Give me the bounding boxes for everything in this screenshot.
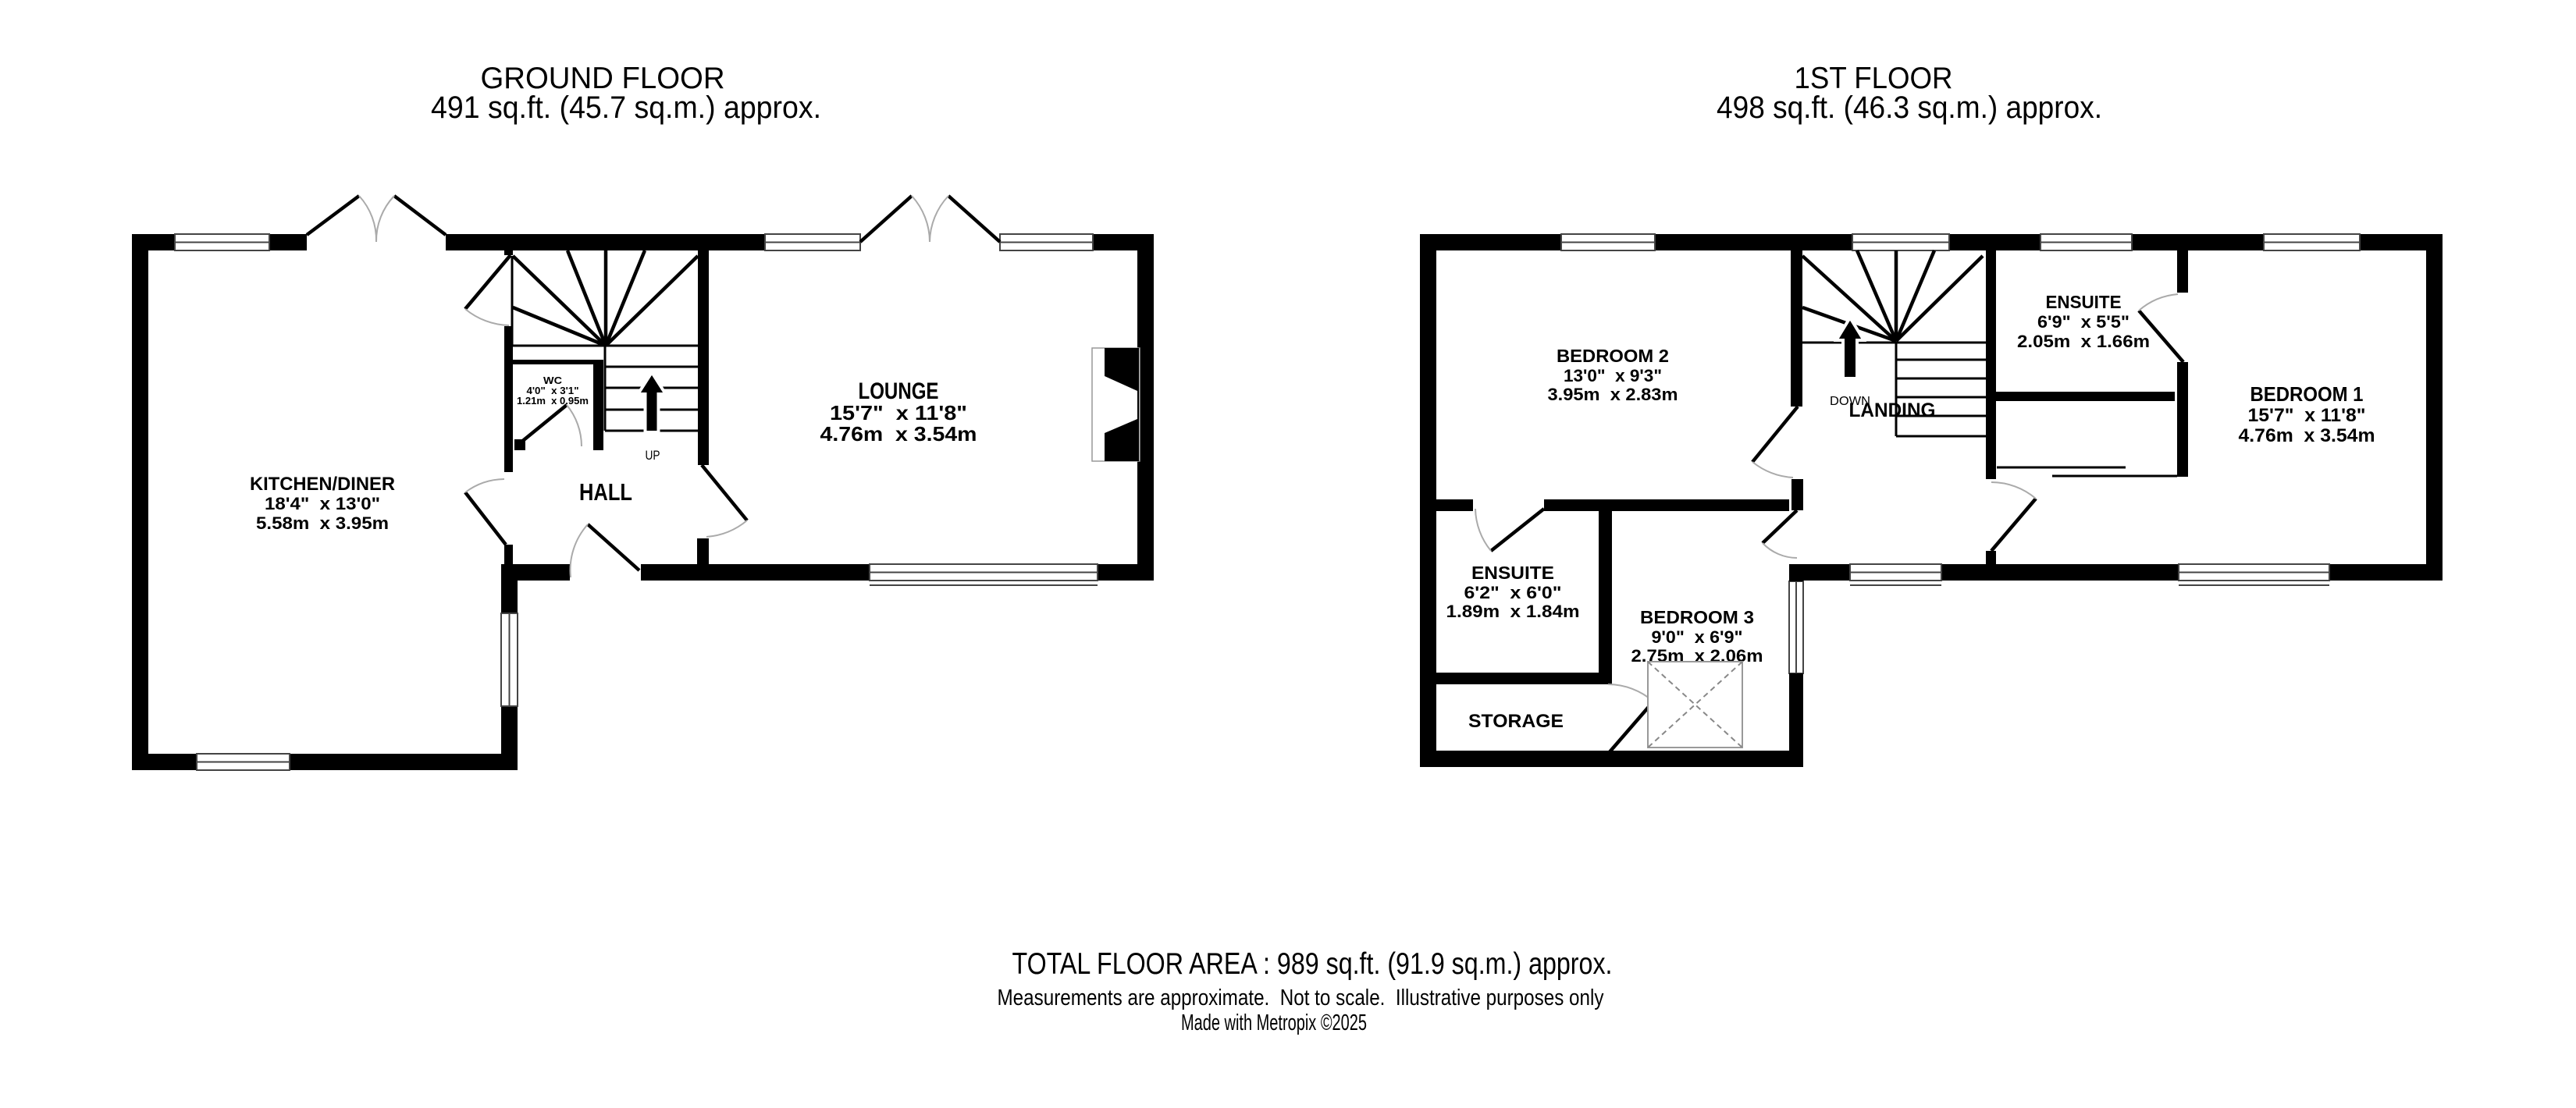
- svg-text:ENSUITE: ENSUITE: [1471, 563, 1554, 583]
- svg-text:498 sq.ft. (46.3 sq.m.) approx: 498 sq.ft. (46.3 sq.m.) approx.: [1717, 91, 2102, 125]
- svg-text:15'7" x 11'8": 15'7" x 11'8": [2248, 405, 2366, 426]
- svg-text:6'2" x 6'0": 6'2" x 6'0": [1464, 583, 1562, 602]
- svg-text:1.21m x 0.95m: 1.21m x 0.95m: [517, 395, 589, 407]
- svg-text:STORAGE: STORAGE: [1468, 711, 1564, 732]
- svg-text:3.95m x 2.83m: 3.95m x 2.83m: [1548, 385, 1678, 404]
- svg-text:6'9" x 5'5": 6'9" x 5'5": [2037, 312, 2129, 332]
- svg-text:TOTAL FLOOR AREA : 989 sq.ft.: TOTAL FLOOR AREA : 989 sq.ft. (91.9 sq.m…: [1012, 947, 1613, 981]
- svg-text:ENSUITE: ENSUITE: [2046, 292, 2122, 312]
- svg-text:UP: UP: [646, 448, 660, 463]
- svg-text:BEDROOM 3: BEDROOM 3: [1640, 607, 1754, 627]
- svg-text:HALL: HALL: [579, 478, 632, 506]
- svg-text:13'0" x 9'3": 13'0" x 9'3": [1564, 366, 1662, 385]
- svg-text:Made with Metropix ©2025: Made with Metropix ©2025: [1181, 1010, 1367, 1035]
- svg-text:15'7" x 11'8": 15'7" x 11'8": [830, 401, 967, 424]
- svg-text:491 sq.ft. (45.7 sq.m.) approx: 491 sq.ft. (45.7 sq.m.) approx.: [431, 91, 821, 125]
- svg-text:4.76m x 3.54m: 4.76m x 3.54m: [820, 422, 977, 446]
- svg-text:5.58m x 3.95m: 5.58m x 3.95m: [256, 513, 389, 533]
- svg-text:2.05m x 1.66m: 2.05m x 1.66m: [2017, 332, 2150, 351]
- svg-text:KITCHEN/DINER: KITCHEN/DINER: [250, 474, 395, 495]
- svg-text:Measurements are approximate.: Measurements are approximate. Not to sca…: [998, 985, 1604, 1010]
- svg-text:18'4" x 13'0": 18'4" x 13'0": [265, 494, 380, 513]
- svg-text:BEDROOM 1: BEDROOM 1: [2250, 382, 2364, 406]
- svg-text:4.76m x 3.54m: 4.76m x 3.54m: [2239, 425, 2375, 446]
- svg-text:DOWN: DOWN: [1830, 395, 1870, 408]
- svg-text:BEDROOM 2: BEDROOM 2: [1557, 346, 1669, 366]
- svg-text:1.89m x 1.84m: 1.89m x 1.84m: [1446, 602, 1580, 621]
- svg-text:9'0" x 6'9": 9'0" x 6'9": [1652, 627, 1743, 647]
